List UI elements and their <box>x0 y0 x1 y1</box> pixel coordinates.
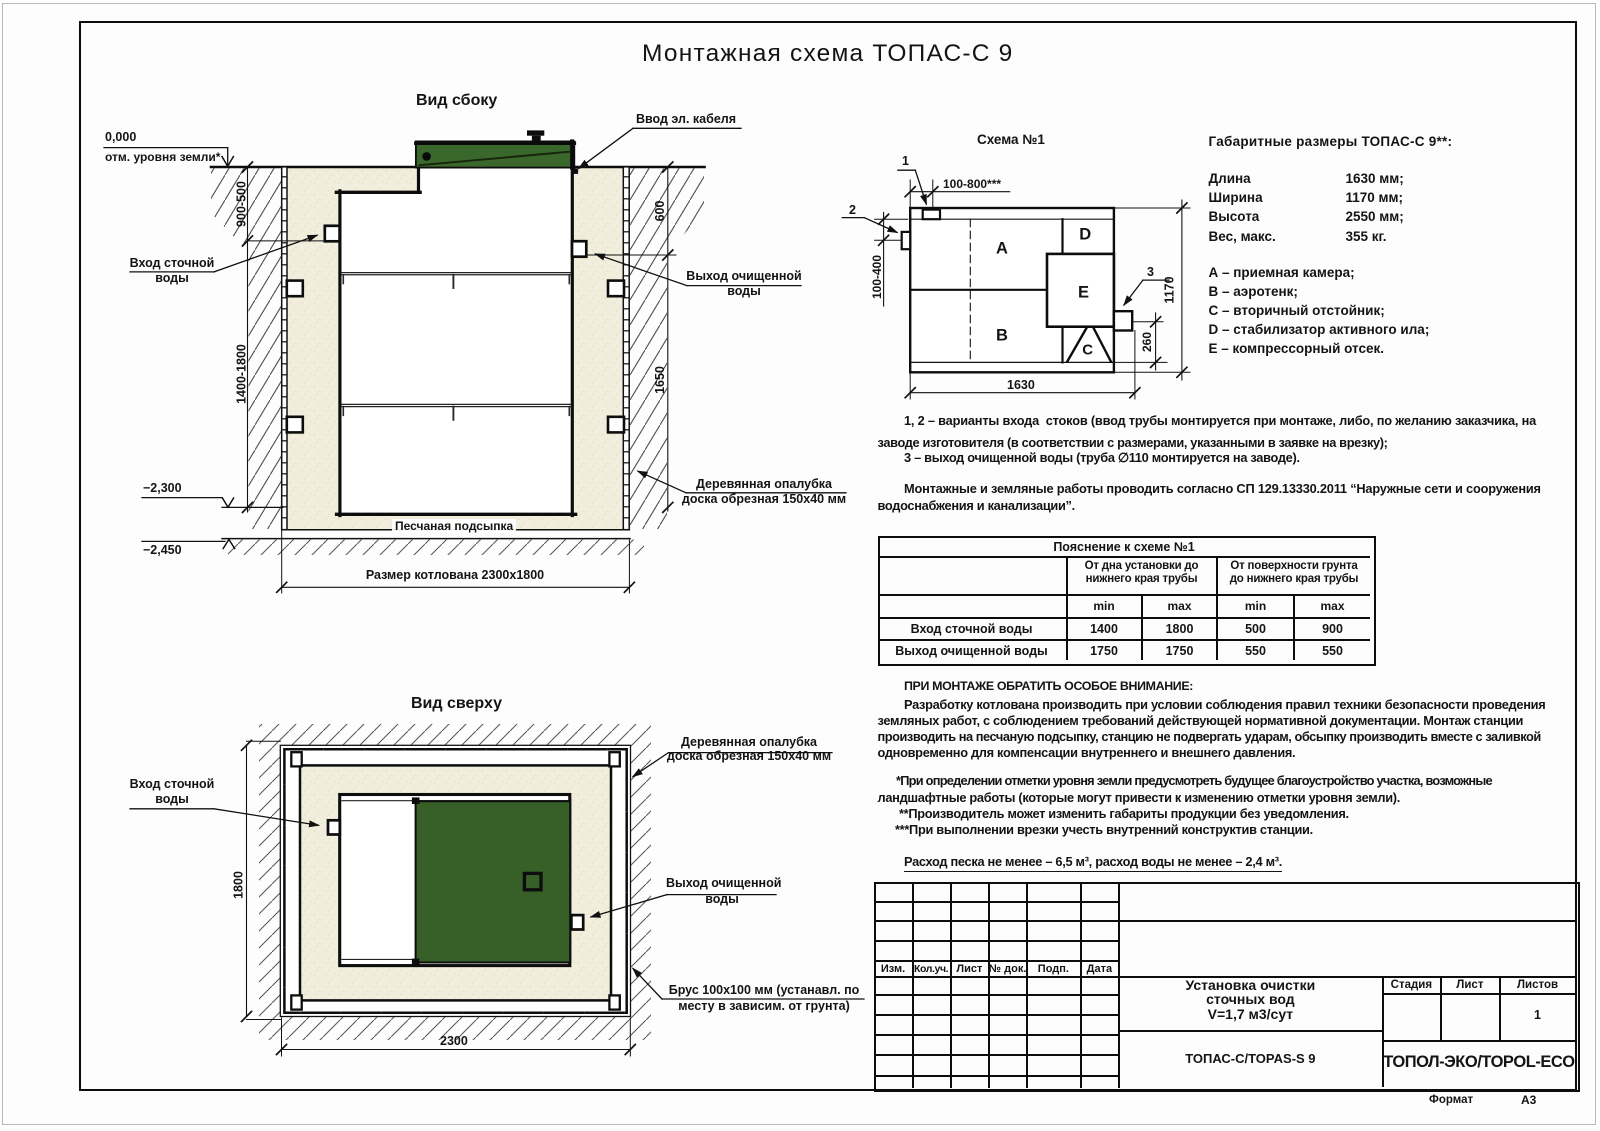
svg-text:260: 260 <box>1140 332 1154 352</box>
svg-text:А: А <box>996 240 1008 258</box>
svg-text:D: D <box>1079 225 1091 243</box>
svg-text:Е: Е <box>1078 284 1089 302</box>
svg-text:600: 600 <box>653 201 667 222</box>
svg-text:1800: 1800 <box>232 871 246 899</box>
svg-text:С: С <box>1082 342 1093 359</box>
svg-text:900-500: 900-500 <box>235 181 249 227</box>
svg-text:1650: 1650 <box>653 366 667 394</box>
svg-text:В: В <box>996 327 1008 345</box>
svg-text:1170: 1170 <box>1163 276 1177 303</box>
svg-text:100-400: 100-400 <box>870 255 884 299</box>
svg-text:1400-1800: 1400-1800 <box>235 344 249 404</box>
